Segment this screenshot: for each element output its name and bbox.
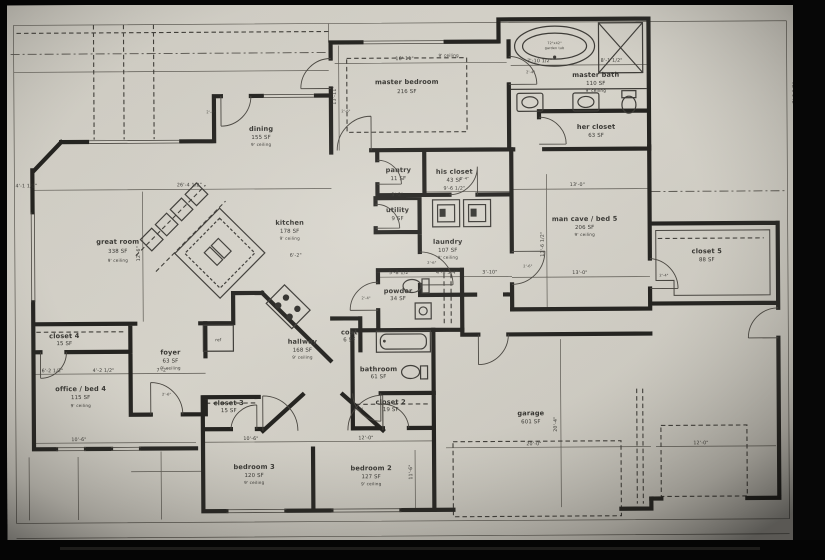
floorplan-photo: master bedroom 216 SF 9' ceiling master …	[0, 0, 825, 560]
plan-sheet: master bedroom 216 SF 9' ceiling master …	[4, 1, 815, 551]
monitor-bezel-line	[60, 547, 760, 550]
photo-vignette	[4, 1, 815, 551]
